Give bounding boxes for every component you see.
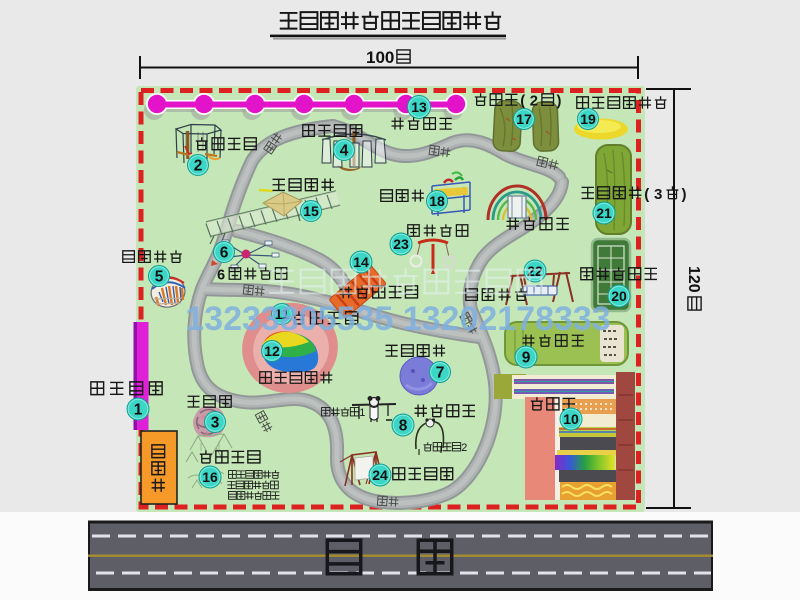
svg-text:120: 120 [685, 266, 702, 293]
svg-text:10: 10 [563, 411, 579, 427]
svg-text:1: 1 [134, 402, 143, 419]
svg-text:6: 6 [217, 267, 225, 283]
svg-text:1: 1 [359, 407, 365, 419]
svg-text:18: 18 [429, 193, 445, 209]
svg-text:23: 23 [393, 236, 409, 252]
svg-text:6: 6 [220, 245, 229, 262]
svg-text:8: 8 [399, 418, 408, 435]
svg-text:): ) [557, 94, 562, 110]
svg-text:24: 24 [372, 467, 388, 483]
svg-text:5: 5 [155, 269, 164, 286]
svg-text:16: 16 [202, 469, 218, 485]
svg-text:2: 2 [461, 442, 467, 454]
svg-text:12: 12 [264, 343, 280, 359]
svg-text:20: 20 [611, 288, 627, 304]
svg-text:2: 2 [530, 94, 538, 110]
svg-text:17: 17 [516, 111, 532, 127]
svg-text:3: 3 [654, 186, 662, 203]
svg-text:100: 100 [366, 48, 394, 67]
svg-text:13: 13 [411, 99, 427, 115]
svg-text:2: 2 [194, 158, 203, 175]
svg-text:13233805535 13202178333: 13233805535 13202178333 [185, 300, 610, 338]
svg-text:9: 9 [522, 350, 531, 367]
svg-text:(: ( [520, 94, 525, 110]
svg-text:4: 4 [340, 143, 349, 160]
svg-text:14: 14 [353, 254, 369, 270]
svg-text:7: 7 [436, 365, 445, 382]
svg-text:21: 21 [596, 205, 612, 221]
svg-text:19: 19 [580, 111, 596, 127]
svg-text:): ) [682, 186, 687, 203]
svg-text:3: 3 [211, 415, 220, 432]
svg-text:15: 15 [303, 203, 319, 219]
